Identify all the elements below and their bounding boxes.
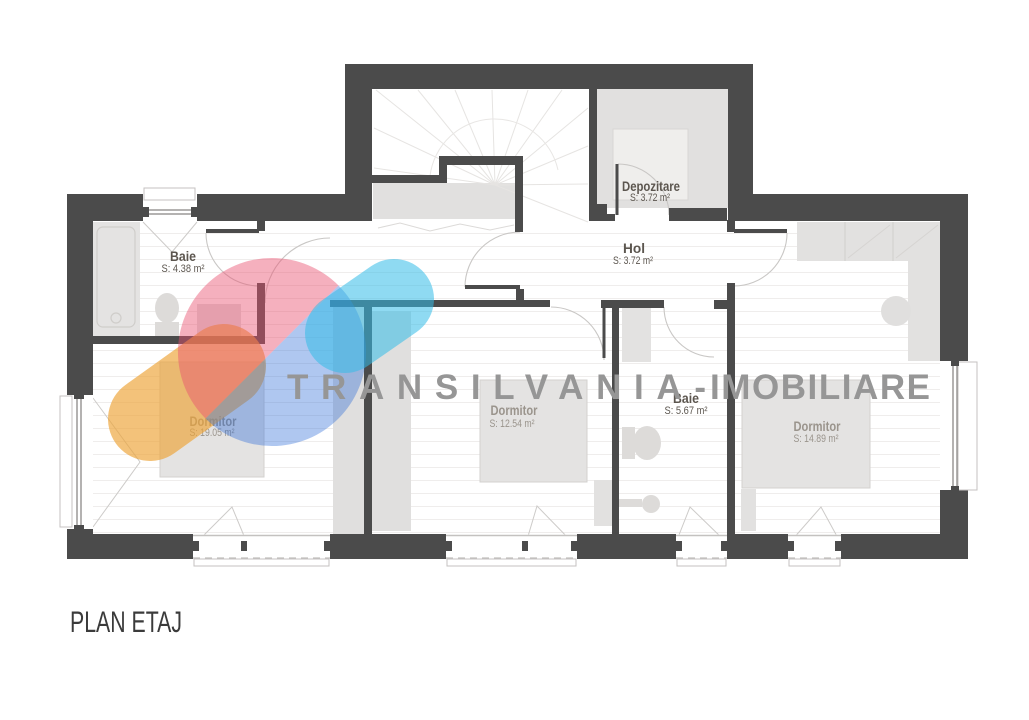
svg-text:S: 14.89 m²: S: 14.89 m² [794, 433, 839, 445]
svg-text:PLAN ETAJ: PLAN ETAJ [70, 606, 182, 639]
svg-text:Hol: Hol [623, 240, 645, 256]
svg-text:IMOBILIARE: IMOBILIARE [710, 368, 930, 407]
svg-text:S: 12.54 m²: S: 12.54 m² [490, 418, 535, 430]
svg-text:S: 3.72 m²: S: 3.72 m² [630, 192, 670, 204]
svg-text:S: 3.72 m²: S: 3.72 m² [613, 255, 653, 267]
svg-text:Baie: Baie [170, 248, 196, 264]
svg-text:Dormitor: Dormitor [794, 418, 841, 434]
svg-text:S: 4.38 m²: S: 4.38 m² [162, 263, 205, 275]
